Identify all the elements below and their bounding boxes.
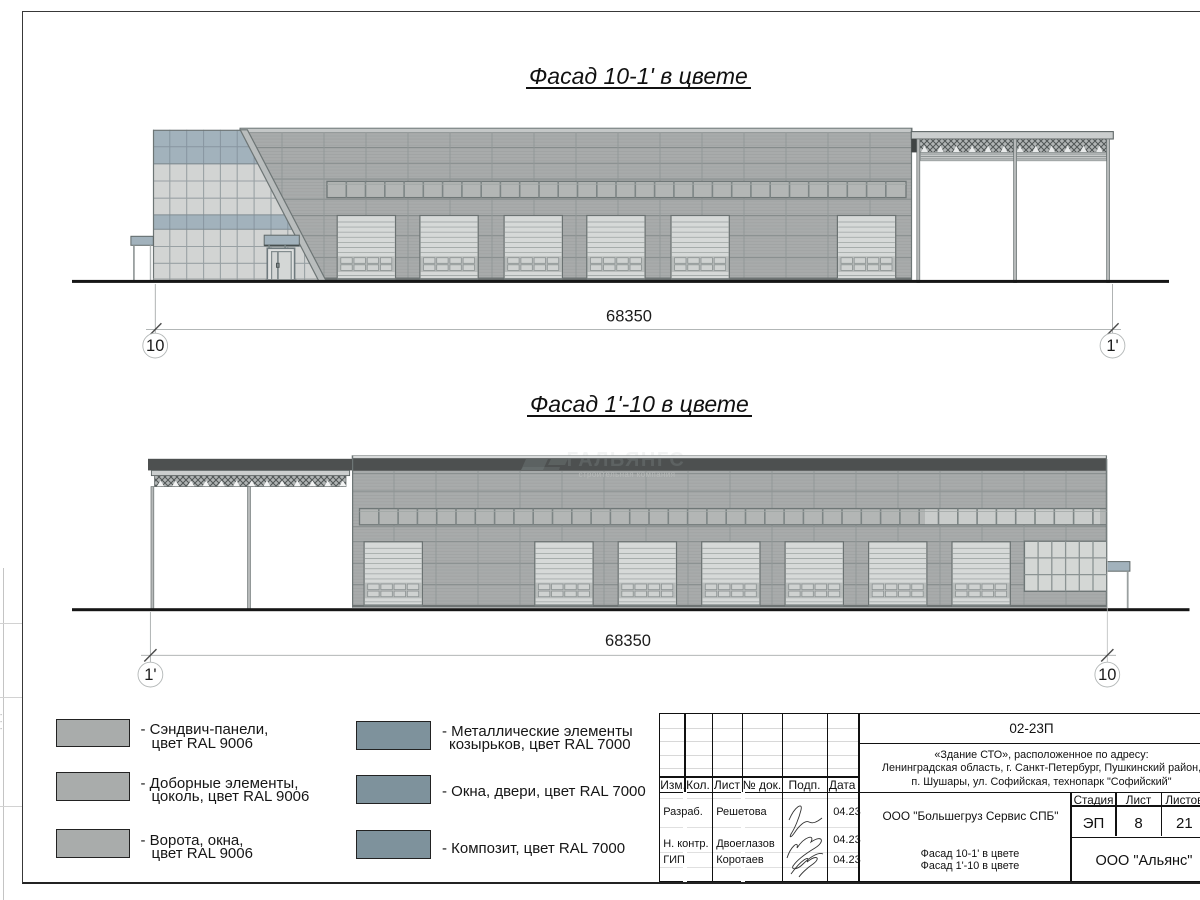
svg-text:68350: 68350 — [606, 308, 652, 326]
svg-text:1': 1' — [1106, 337, 1118, 355]
svg-text:строительная компания: строительная компания — [579, 470, 676, 479]
svg-text:1': 1' — [144, 666, 156, 684]
svg-text:10: 10 — [1098, 666, 1116, 684]
svg-text:68350: 68350 — [605, 632, 651, 650]
svg-text:10: 10 — [146, 337, 164, 355]
